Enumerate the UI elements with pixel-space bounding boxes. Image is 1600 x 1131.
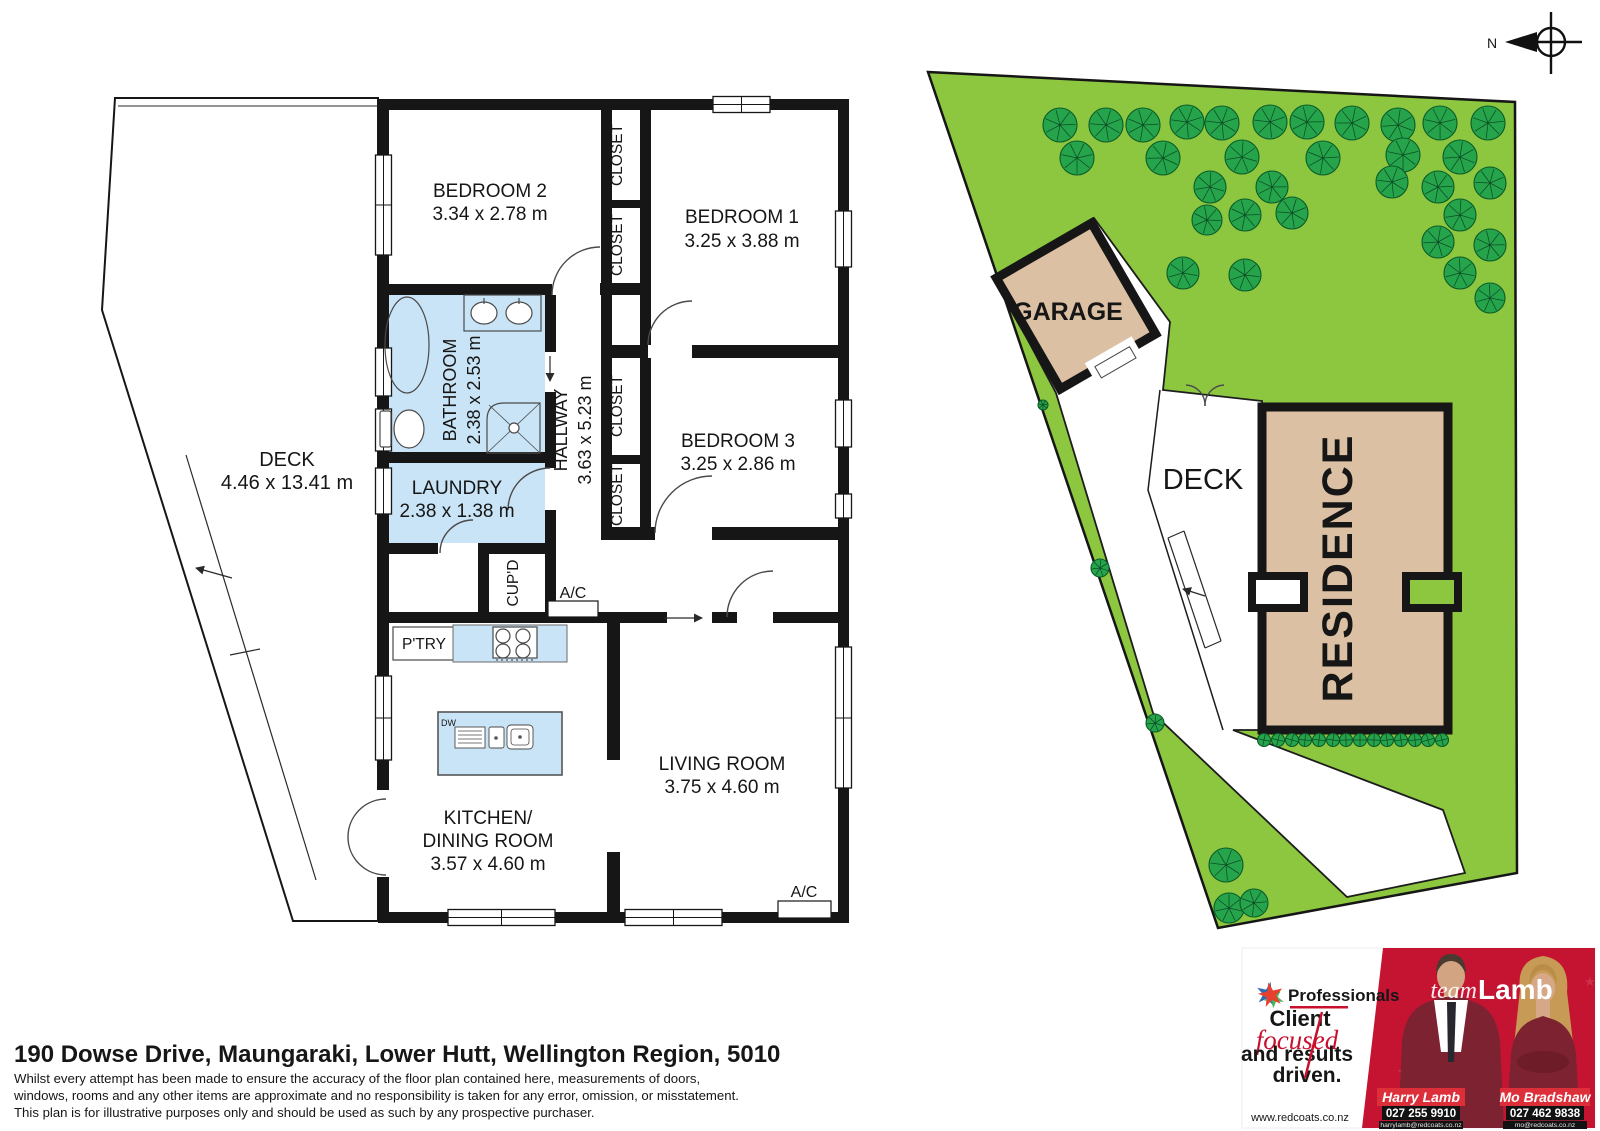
tree-icon <box>1167 257 1199 289</box>
title-block: 190 Dowse Drive, Maungaraki, Lower Hutt,… <box>13 1041 780 1120</box>
cupboard-label: CUP'D <box>505 560 522 607</box>
svg-text:2.38 x 2.53 m: 2.38 x 2.53 m <box>464 335 484 444</box>
tree-icon <box>1422 734 1435 747</box>
svg-text:Mo Bradshaw: Mo Bradshaw <box>1499 1089 1591 1105</box>
window <box>836 400 852 447</box>
tree-icon <box>1409 734 1422 747</box>
room-label-living: LIVING ROOM <box>659 754 786 775</box>
tree-icon <box>1225 140 1259 174</box>
residence-building: RESIDENCE <box>1252 407 1458 730</box>
tree-icon <box>1443 140 1477 174</box>
tree-icon <box>1276 197 1308 229</box>
window <box>836 647 852 788</box>
residence-label: RESIDENCE <box>1314 434 1362 703</box>
tree-icon <box>1422 171 1454 203</box>
tree-icon <box>1192 205 1222 235</box>
svg-text:027 462 9838: 027 462 9838 <box>1510 1108 1581 1120</box>
wall <box>773 612 849 623</box>
tree-icon <box>1313 734 1326 747</box>
svg-text:★: ★ <box>1584 974 1596 989</box>
tree-icon <box>1229 199 1261 231</box>
tree-icon <box>1335 106 1369 140</box>
window <box>376 676 392 760</box>
closet-label: CLOSET <box>609 374 626 437</box>
tree-icon <box>1214 893 1244 923</box>
door-arc <box>552 247 600 295</box>
room-label-bedroom-1: BEDROOM 1 <box>685 207 799 228</box>
room-label-hallway: HALLWAY <box>551 389 571 472</box>
wall <box>712 612 737 623</box>
svg-text:and results: and results <box>1241 1043 1353 1066</box>
room-label-deck: DECK <box>259 449 315 471</box>
wall <box>601 527 655 540</box>
door-arc <box>727 571 773 617</box>
wall <box>601 295 612 345</box>
tree-icon <box>1306 141 1340 175</box>
tree-icon <box>1194 171 1226 203</box>
svg-text:A/C: A/C <box>560 585 587 602</box>
tree-icon <box>1381 734 1394 747</box>
door-arc <box>648 301 692 345</box>
tree-icon <box>1423 106 1457 140</box>
tree-icon <box>1258 734 1271 747</box>
window <box>625 910 722 926</box>
svg-text:3.25 x 3.88 m: 3.25 x 3.88 m <box>684 231 799 252</box>
tree-icon <box>1060 141 1094 175</box>
window <box>836 211 852 267</box>
stove-icon <box>453 625 567 662</box>
tree-icon <box>1256 171 1288 203</box>
brand-name: Professionals <box>1288 986 1400 1005</box>
wall <box>640 358 651 527</box>
svg-text:3.57 x 4.60 m: 3.57 x 4.60 m <box>430 854 545 875</box>
disclaimer-line: Whilst every attempt has been made to en… <box>14 1071 700 1086</box>
tree-icon <box>1240 889 1268 917</box>
tree-icon <box>1229 259 1261 291</box>
garage-label: GARAGE <box>1013 298 1123 326</box>
disclaimer-line: This plan is for illustrative purposes o… <box>14 1105 595 1120</box>
tree-icon <box>1474 229 1506 261</box>
wall <box>389 543 438 554</box>
tree-icon <box>1089 108 1123 142</box>
wall <box>545 510 556 612</box>
sink-icon <box>471 302 497 324</box>
tree-icon <box>1395 734 1408 747</box>
room-label-bedroom-2: BEDROOM 2 <box>433 181 547 202</box>
wall <box>545 295 556 352</box>
tree-icon <box>1368 734 1381 747</box>
wall <box>607 623 620 760</box>
closet-label: CLOSET <box>609 463 626 526</box>
compass-icon: N <box>1487 12 1582 74</box>
room-label-bedroom-3: BEDROOM 3 <box>681 431 795 452</box>
wall <box>378 99 849 110</box>
tree-icon <box>1376 166 1408 198</box>
wall <box>389 452 545 463</box>
tree-icon <box>1091 559 1109 577</box>
ac-unit: A/C <box>778 884 831 918</box>
tree-icon <box>1299 734 1312 747</box>
svg-text:3.34 x 2.78 m: 3.34 x 2.78 m <box>432 204 547 225</box>
tree-icon <box>1340 734 1353 747</box>
compass-north-label: N <box>1487 35 1497 51</box>
wall <box>389 612 667 623</box>
sink-icon <box>506 302 532 324</box>
wall <box>601 200 651 208</box>
tree-icon <box>1272 734 1285 747</box>
svg-text:Lamb: Lamb <box>1478 974 1553 1005</box>
kitchen-island: DW <box>438 712 562 775</box>
tree-icon <box>1444 199 1476 231</box>
room-label-bathroom: BATHROOM <box>440 339 460 442</box>
window <box>836 494 852 518</box>
wall <box>712 527 849 540</box>
agent-badge-harry: Harry Lamb 027 255 9910 harrylamb@redcoa… <box>1377 1088 1465 1129</box>
wall <box>607 852 620 912</box>
closet-label: CLOSET <box>609 213 626 276</box>
pantry-label: P'TRY <box>402 636 446 653</box>
tree-icon <box>1205 106 1239 140</box>
closet-label: CLOSET <box>609 123 626 186</box>
tree-icon <box>1471 106 1505 140</box>
tree-icon <box>1286 734 1299 747</box>
svg-text:team: team <box>1430 978 1477 1004</box>
tree-icon <box>1381 108 1415 142</box>
tree-icon <box>1354 734 1367 747</box>
window <box>376 468 392 514</box>
tree-icon <box>1038 400 1048 410</box>
tree-icon <box>1290 105 1324 139</box>
svg-text:Harry Lamb: Harry Lamb <box>1382 1089 1460 1105</box>
floor-plan: DECK 4.46 x 13.41 m <box>102 97 852 926</box>
svg-text:3.75 x 4.60 m: 3.75 x 4.60 m <box>664 777 779 798</box>
door-arc <box>655 476 712 533</box>
tree-icon <box>1327 734 1340 747</box>
tree-icon <box>1146 141 1180 175</box>
room-label-kitchen: KITCHEN/ <box>444 808 533 829</box>
tree-icon <box>1253 105 1287 139</box>
brand-ad: ★ ★ ★ ★ ★ Professionals Client focused a… <box>1241 948 1596 1129</box>
tree-icon <box>1043 108 1077 142</box>
svg-text:3.25 x 2.86 m: 3.25 x 2.86 m <box>680 454 795 475</box>
tree-icon <box>1444 257 1476 289</box>
toilet-icon <box>394 410 424 448</box>
svg-text:027 255 9910: 027 255 9910 <box>1386 1108 1456 1120</box>
svg-text:3.63 x 5.23 m: 3.63 x 5.23 m <box>575 375 595 484</box>
team-lamb-wordmark: team Lamb <box>1430 974 1552 1005</box>
property-plan-page: DECK 4.46 x 13.41 m <box>0 0 1600 1131</box>
tree-icon <box>1170 105 1204 139</box>
website-url: www.redcoats.co.nz <box>1250 1112 1349 1124</box>
wall <box>601 455 651 464</box>
address-title: 190 Dowse Drive, Maungaraki, Lower Hutt,… <box>14 1041 780 1068</box>
svg-text:2.38 x 1.38 m: 2.38 x 1.38 m <box>399 501 514 522</box>
tree-icon <box>1436 734 1449 747</box>
site-deck-label: DECK <box>1163 464 1244 496</box>
deck-area: DECK 4.46 x 13.41 m <box>102 98 378 921</box>
window <box>376 155 392 255</box>
room-label-laundry: LAUNDRY <box>412 478 503 499</box>
tree-icon <box>1474 167 1506 199</box>
wall <box>389 284 552 295</box>
svg-text:mo@redcoats.co.nz: mo@redcoats.co.nz <box>1515 1122 1576 1129</box>
disclaimer-line: windows, rooms and any other items are a… <box>13 1088 739 1103</box>
site-plan: GARAGE DECK RESIDENCE <box>928 72 1517 928</box>
tree-icon <box>1422 226 1454 258</box>
plan-canvas: DECK 4.46 x 13.41 m <box>0 0 1600 1131</box>
svg-text:DINING ROOM: DINING ROOM <box>423 831 554 852</box>
tree-icon <box>1126 108 1160 142</box>
tree-icon <box>1209 848 1243 882</box>
tree-icon <box>1475 283 1505 313</box>
svg-text:harrylamb@redcoats.co.nz: harrylamb@redcoats.co.nz <box>1380 1122 1462 1129</box>
deck-outline <box>102 98 378 921</box>
wall <box>601 345 648 358</box>
svg-text:A/C: A/C <box>791 884 818 901</box>
dishwasher-label: DW <box>441 718 456 728</box>
tree-icon <box>1146 714 1164 732</box>
wall <box>640 110 651 345</box>
wall <box>478 554 489 612</box>
wall <box>692 345 849 358</box>
toilet-tank-icon <box>380 411 391 447</box>
window <box>713 97 770 113</box>
wall <box>478 543 556 554</box>
agent-badge-mo: Mo Bradshaw 027 462 9838 mo@redcoats.co.… <box>1499 1088 1591 1129</box>
room-dims-deck: 4.46 x 13.41 m <box>221 472 353 494</box>
window <box>448 910 555 926</box>
